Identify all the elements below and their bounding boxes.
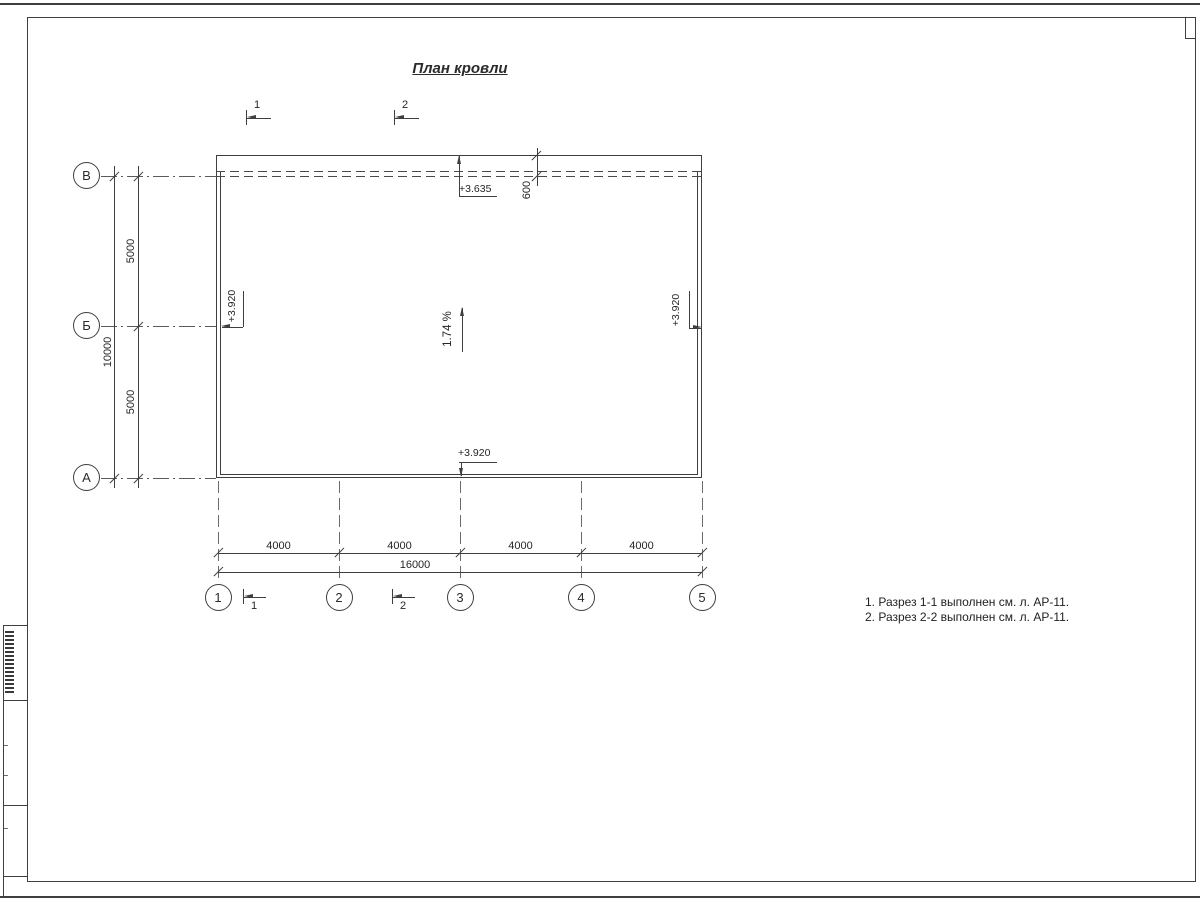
axis-col-label: 4 (577, 590, 584, 605)
page-title: План кровли (370, 60, 550, 77)
axis-bubble-row-A: А (73, 464, 100, 491)
note-line-2: 2. Разрез 2-2 выполнен см. л. АР-11. (865, 610, 1069, 625)
dim-value-4000-4: 4000 (620, 540, 664, 552)
titleblock-mark (4, 775, 8, 776)
frame-corner-box (1185, 17, 1196, 39)
elevation-bottom-underline (459, 462, 497, 463)
elevation-arrow-icon (693, 325, 702, 329)
notes-block: 1. Разрез 1-1 выполнен см. л. АР-11. 2. … (865, 595, 1069, 625)
titleblock-divider (3, 805, 27, 806)
titleblock-divider (3, 625, 27, 626)
dim-value-4000-3: 4000 (499, 540, 543, 552)
dim-value-600: 600 (521, 175, 533, 205)
grid-extension-line-3 (460, 481, 461, 583)
axis-bubble-row-V: В (73, 162, 100, 189)
frame-outer-top (0, 3, 1200, 5)
grid-extension-line-5 (702, 481, 703, 583)
grid-extension-line-1 (218, 481, 219, 583)
parapet-inner-line (220, 172, 698, 475)
titleblock-illegible-text (5, 631, 14, 694)
axis-col-label: 3 (456, 590, 463, 605)
section-arrow-icon (247, 115, 256, 119)
elevation-right-underline (689, 291, 690, 328)
dim-value-5000-upper: 5000 (125, 229, 137, 273)
section-mark-1-top-label: 1 (250, 99, 264, 111)
axis-line-B-upper (101, 176, 216, 177)
section-mark-2-top-label: 2 (398, 99, 412, 111)
axis-bubble-col-5: 5 (689, 584, 716, 611)
axis-bubble-col-2: 2 (326, 584, 353, 611)
axis-col-label: 2 (335, 590, 342, 605)
dim-value-16000: 16000 (390, 559, 440, 571)
drawing-sheet: План кровли 1 2 В Б А 5000 5000 10000 60… (0, 0, 1200, 900)
axis-line-A (101, 478, 216, 479)
elevation-arrow-icon (459, 468, 463, 477)
axis-col-label: 5 (698, 590, 705, 605)
elevation-value-left: +3.920 (226, 283, 238, 329)
dim-line-vertical-total (114, 166, 115, 488)
titleblock-mark (4, 745, 8, 746)
section-mark-1-bottom-label: 1 (247, 600, 261, 612)
elevation-left-underline (243, 291, 244, 327)
elevation-value-right: +3.920 (670, 287, 682, 333)
axis-bubble-row-B: Б (73, 312, 100, 339)
dim-line-horizontal-total (218, 572, 702, 573)
axis-row-label: Б (82, 318, 91, 333)
elevation-top-underline (459, 196, 497, 197)
axis-row-label: А (82, 470, 91, 485)
axis-line-B-mid (101, 326, 216, 327)
axis-bubble-col-4: 4 (568, 584, 595, 611)
slope-arrow-icon (460, 307, 464, 316)
axis-col-label: 1 (214, 590, 221, 605)
dim-value-4000-2: 4000 (378, 540, 422, 552)
titleblock-divider (3, 876, 27, 877)
axis-bubble-col-1: 1 (205, 584, 232, 611)
dim-value-5000-lower: 5000 (125, 380, 137, 424)
grid-extension-line-4 (581, 481, 582, 583)
section-mark-2-bottom-label: 2 (396, 600, 410, 612)
section-arrow-icon (244, 594, 253, 598)
axis-row-label: В (82, 168, 91, 183)
elevation-arrow-icon (457, 155, 461, 164)
grid-extension-line-2 (339, 481, 340, 583)
elevation-value-top: +3.635 (459, 183, 497, 195)
slope-value: 1.74 % (442, 303, 454, 355)
dim-value-4000-1: 4000 (257, 540, 301, 552)
elevation-value-bottom: +3.920 (458, 447, 498, 459)
titleblock-mark (4, 828, 8, 829)
section-arrow-icon (395, 115, 404, 119)
titleblock-divider (3, 700, 27, 701)
titleblock-strip-left-edge (3, 625, 4, 896)
section-arrow-icon (393, 594, 402, 598)
dim-value-10000: 10000 (102, 324, 114, 380)
axis-bubble-col-3: 3 (447, 584, 474, 611)
frame-outer-bottom (0, 896, 1200, 898)
note-line-1: 1. Разрез 1-1 выполнен см. л. АР-11. (865, 595, 1069, 610)
